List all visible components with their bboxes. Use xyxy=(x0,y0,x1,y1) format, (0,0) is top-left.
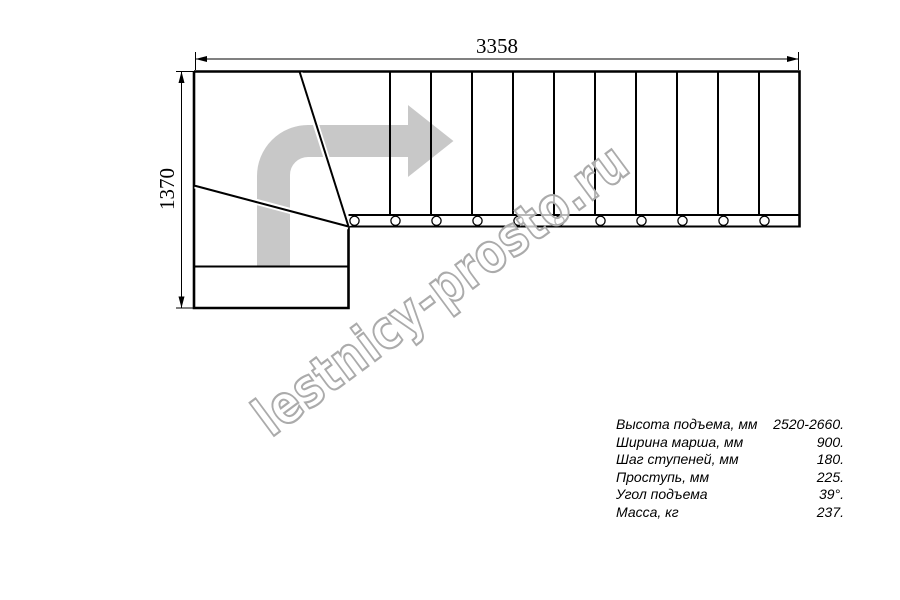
spec-label: Масса, кг xyxy=(616,504,679,522)
stair-drawing-page: 3358 1370 lestnicy-prosto.ru Высота подъ… xyxy=(0,0,900,600)
spec-label: Шаг ступеней, мм xyxy=(616,451,739,469)
spec-row: Высота подъема, мм 2520-2660. xyxy=(616,416,844,434)
spec-label: Высота подъема, мм xyxy=(616,416,758,434)
spec-value: 2520-2660. xyxy=(773,416,844,434)
spec-row: Ширина марша, мм 900. xyxy=(616,434,844,452)
spec-row: Масса, кг 237. xyxy=(616,504,844,522)
left-dimension: 1370 xyxy=(155,72,194,309)
dim-arrow-right-icon xyxy=(787,56,799,62)
spec-value: 237. xyxy=(817,504,844,522)
specs-table: Высота подъема, мм 2520-2660. Ширина мар… xyxy=(616,416,844,522)
watermark-text: lestnicy-prosto.ru xyxy=(241,130,640,448)
dim-arrow-left-icon xyxy=(196,56,208,62)
top-dimension: 3358 xyxy=(196,34,799,70)
spec-value: 180. xyxy=(817,451,844,469)
spec-label: Проступь, мм xyxy=(616,469,709,487)
spec-row: Шаг ступеней, мм 180. xyxy=(616,451,844,469)
spec-label: Ширина марша, мм xyxy=(616,434,743,452)
top-dimension-label: 3358 xyxy=(476,34,518,58)
left-dimension-label: 1370 xyxy=(155,168,179,210)
spec-row: Проступь, мм 225. xyxy=(616,469,844,487)
dim-arrow-up-icon xyxy=(179,72,185,84)
dim-arrow-down-icon xyxy=(179,297,185,309)
spec-value: 900. xyxy=(817,434,844,452)
spec-label: Угол подъема xyxy=(616,486,708,504)
spec-value: 225. xyxy=(817,469,844,487)
spec-row: Угол подъема 39°. xyxy=(616,486,844,504)
direction-arrow xyxy=(256,103,455,267)
spec-value: 39°. xyxy=(819,486,844,504)
